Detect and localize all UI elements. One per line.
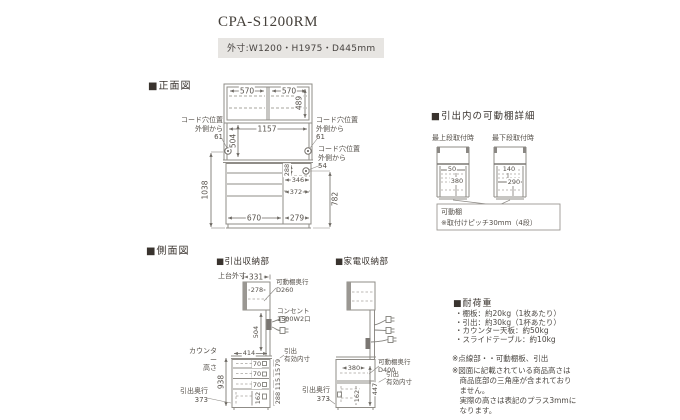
dim-drawer-front-2: 70 bbox=[252, 370, 262, 378]
upper-outer-label: 上台外寸 bbox=[218, 272, 246, 281]
cord-hole-label-right-lower: コード穴位置 外側から 54 bbox=[318, 145, 360, 171]
dim-side-open-height: 504 bbox=[252, 325, 260, 339]
dim-drawer-inner-3: 115 bbox=[274, 377, 282, 391]
appliance-drawer-inner-label: 引出 有効内寸 bbox=[386, 371, 412, 387]
shelf-detail-bottom-label: 最下段取付時 bbox=[492, 134, 534, 143]
shelf-detail-note: 可動棚 ※取付けピッチ30mm（4段） bbox=[441, 207, 537, 229]
appliance-drawer-depth-label: 引出奥行 373 bbox=[299, 386, 330, 403]
appliance-section-heading: ■家電収納部 bbox=[335, 255, 389, 267]
dim-top-cabinet-height: 489 bbox=[295, 95, 304, 111]
dim-shelf-width: 278 bbox=[250, 286, 264, 294]
cord-hole-label-left: コード穴位置 外側から 61 bbox=[178, 116, 223, 142]
dim-counter-height: 938 bbox=[217, 374, 226, 390]
dim-open-height: 504 bbox=[229, 133, 238, 149]
dim-upper-width: 331 bbox=[248, 273, 264, 282]
outlet-label: コンセント 1500W2口 bbox=[277, 308, 311, 324]
dim-appliance-slide-width: 380 bbox=[347, 364, 361, 372]
dim-drawer-inner-4: 288 bbox=[274, 391, 282, 405]
drawer-inner-label: 引出 有効内寸 bbox=[284, 348, 310, 364]
outer-dimensions-badge: 外寸:W1200・H1975・D445mm bbox=[218, 38, 384, 58]
front-view-drawing bbox=[211, 84, 330, 228]
dim-appliance-inner-height: 447 bbox=[371, 382, 379, 396]
side-view-appliance-drawing bbox=[327, 282, 397, 410]
load-item-slide-table: ・スライドテーブル：約10kg bbox=[455, 335, 556, 345]
outlet-icon bbox=[366, 338, 371, 349]
page-title: CPA-S1200RM bbox=[218, 14, 318, 31]
shelf-depth-label-d260: 可動棚奥行 D260 bbox=[276, 279, 309, 295]
dim-shelf-bottom-gap: 140 bbox=[502, 165, 516, 173]
dim-shelf-top-below: 380 bbox=[450, 177, 464, 185]
dim-top-left-width: 570 bbox=[239, 87, 255, 96]
counter-height-label: カウンター 高さ bbox=[186, 347, 217, 373]
dim-drawer-front-1: 70 bbox=[252, 360, 262, 368]
spec-sheet: CPA-S1200RM 外寸:W1200・H1975・D445mm ■正面図 5… bbox=[0, 0, 680, 420]
dim-lower-height: 1038 bbox=[201, 179, 210, 200]
shelf-detail-top-label: 最上段取付時 bbox=[432, 134, 474, 143]
dim-bottom-right-width: 279 bbox=[289, 214, 305, 223]
technical-drawing bbox=[0, 0, 680, 420]
dim-inner-width: 1157 bbox=[256, 125, 277, 134]
dim-shelf-top-gap: 50 bbox=[447, 165, 457, 173]
shelf-detail-heading: ■引出内の可動棚詳細 bbox=[431, 108, 535, 122]
outlet-icon bbox=[267, 319, 272, 330]
dim-right-height: 782 bbox=[331, 191, 340, 207]
side-view-heading: ■側面図 bbox=[146, 242, 189, 257]
cord-hole-label-right: コード穴位置 外側から 61 bbox=[316, 116, 358, 142]
dim-drawer-front-4: 162 bbox=[254, 391, 262, 405]
note-dotted-line: ※点線部・・可動棚板、引出 bbox=[452, 354, 548, 364]
drawer-section-heading: ■引出収納部 bbox=[216, 255, 270, 267]
drawer-depth-label: 引出奥行 373 bbox=[177, 387, 208, 404]
dim-slide-width: 346 bbox=[291, 176, 305, 184]
dim-bottom-left-width: 670 bbox=[246, 214, 262, 223]
front-view-heading: ■正面図 bbox=[148, 77, 191, 92]
note-product-height: ※図面に記載されている商品高さは 商品底部の三角座が含まれており ません。 実際… bbox=[452, 366, 576, 416]
dim-drawer-front-3: 70 bbox=[252, 381, 262, 389]
dim-appliance-width: 372 bbox=[289, 188, 303, 196]
load-capacity-heading: ■耐荷重 bbox=[453, 296, 493, 309]
dim-appliance-drawer-height: 162 bbox=[353, 389, 361, 403]
dim-counter-depth: 414 bbox=[242, 349, 256, 357]
dim-shelf-bottom-below: 290 bbox=[507, 178, 521, 186]
